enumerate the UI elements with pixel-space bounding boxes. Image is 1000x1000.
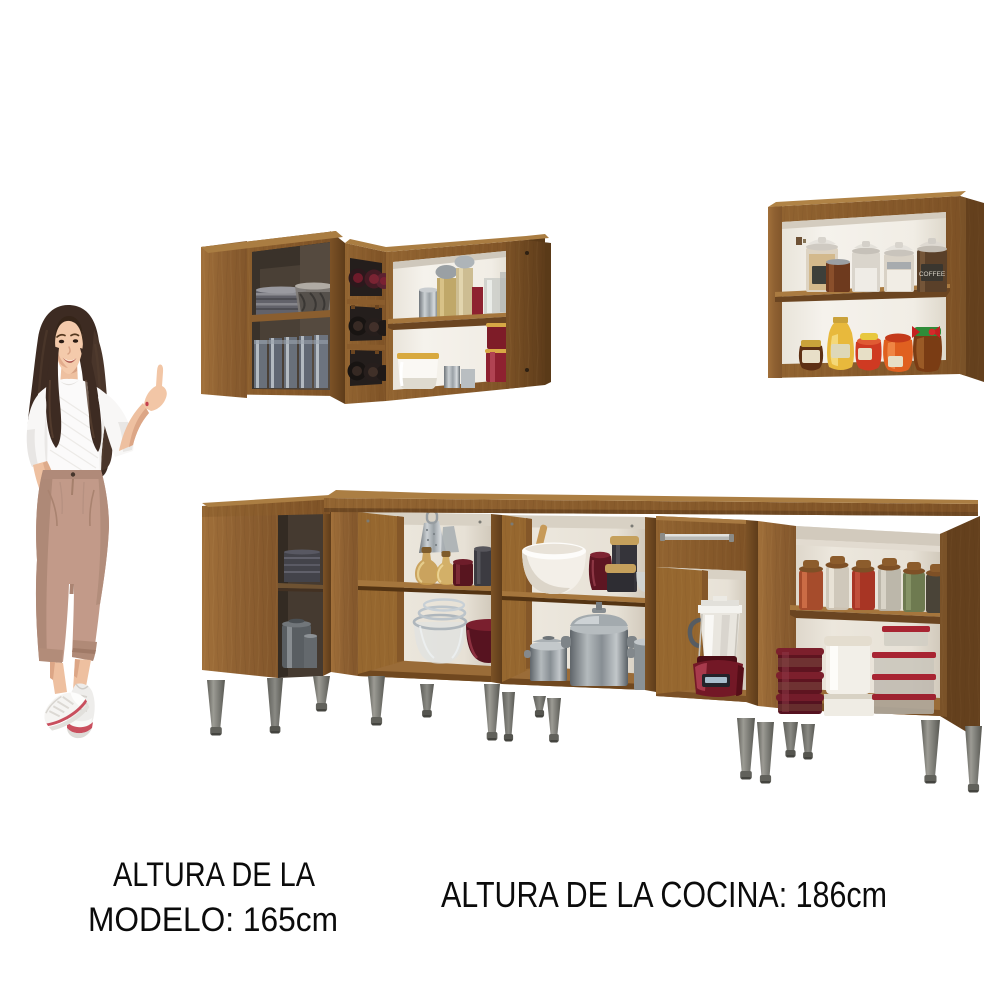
svg-text:COFFEE: COFFEE xyxy=(919,271,946,278)
svg-text:ALTURA DE LA COCINA: 186cm: ALTURA DE LA COCINA: 186cm xyxy=(441,874,887,915)
svg-text:ALTURA DE LA: ALTURA DE LA xyxy=(113,856,315,894)
svg-text:MODELO: 165cm: MODELO: 165cm xyxy=(88,901,338,939)
